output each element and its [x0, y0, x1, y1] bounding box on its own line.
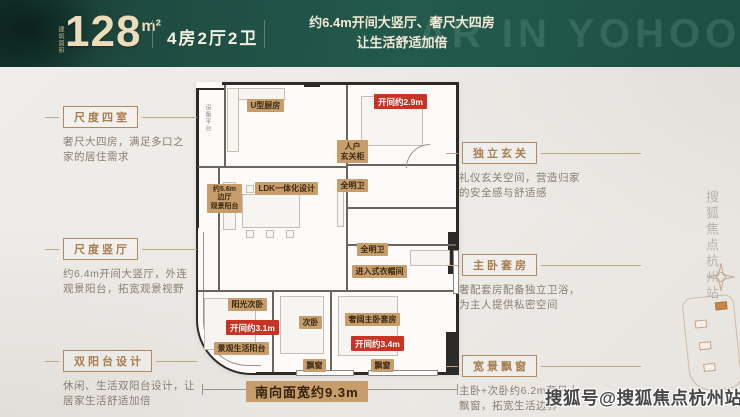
desc-line: 奢配套房配备独立卫浴，: [459, 284, 580, 296]
kitchen-counter: [227, 88, 239, 152]
callout-line: [45, 249, 59, 250]
callout-vertical-hall: 尺度竖厅 约6.4m开间大竖厅，外连 观景阳台，拓宽观景视野: [45, 238, 197, 297]
callout-line: [45, 361, 59, 362]
partition: [198, 290, 456, 292]
callout-description: 奢配套房配备独立卫浴， 为主人提供私密空间: [459, 283, 641, 313]
label-bathroom-1: 全明卫: [337, 179, 368, 192]
header-divider: [264, 20, 265, 48]
label-bathroom-2: 全明卫: [357, 243, 388, 256]
desc-line: 的安全感与舒适感: [459, 187, 547, 199]
dim-label-3-4m: 开间约3.4m: [351, 336, 404, 351]
entry-door-arc: [406, 144, 430, 168]
floor-plan: 设备平台 U型厨房 开间约2.9m 人户 玄关柜 全明卫 LDK一体化设计 约5…: [196, 82, 459, 375]
callout-line: [156, 361, 197, 362]
dining-table: [242, 194, 300, 228]
wall-column: [304, 82, 320, 87]
callout-double-balcony: 双阳台设计 休闲、生活双阳台设计，让 居家生活舒适加倍: [45, 350, 197, 409]
header-divider: [152, 20, 153, 48]
tagline-line2: 让生活舒适加倍: [356, 35, 447, 50]
room-layout-text: 4房2厅2卫: [167, 24, 258, 49]
label-side-hall-line2: 边厅: [218, 194, 232, 201]
chair: [286, 230, 294, 238]
vertical-watermark: 搜狐焦点杭州站: [702, 190, 721, 302]
callout-title: 双阳台设计: [63, 350, 152, 372]
label-walkin-closet: 进入式衣帽间: [352, 265, 407, 278]
label-sun-bedroom: 阳光次卧: [228, 298, 267, 311]
partition: [330, 290, 332, 372]
label-view-balcony: 景观生活阳台: [214, 342, 269, 355]
location-map: [681, 294, 740, 393]
callout-line: [541, 366, 641, 367]
bottom-watermark: 搜狐号@搜狐焦点杭州站: [545, 385, 740, 410]
chair: [266, 230, 274, 238]
floorplan-poster: AR IN YOHOO 建筑面积 128 m² 4房2厅2卫 约6.4m开间大竖…: [0, 0, 740, 417]
label-entry-line2: 玄关柜: [341, 152, 365, 161]
dimension-tick: [202, 384, 203, 395]
label-kitchen: U型厨房: [247, 99, 284, 112]
building-block: [703, 363, 716, 372]
wall: [222, 82, 459, 85]
tagline-line1: 约6.4m开间大竖厅、奢尺大四房: [309, 15, 495, 30]
wall: [456, 82, 459, 375]
chair: [246, 230, 254, 238]
wardrobe: [410, 250, 450, 266]
callout-title: 尺度竖厅: [63, 238, 138, 260]
callout-line: [541, 153, 641, 154]
callout-four-rooms: 尺度四室 奢尺大四房，满足多口之 家的居住需求: [45, 106, 197, 165]
callout-description: 约6.4m开间大竖厅，外连 观景阳台，拓宽观景视野: [63, 267, 197, 297]
desc-line: 约6.4m开间大竖厅，外连: [63, 268, 187, 280]
label-master-suite: 奢阔主卧套房: [345, 313, 400, 326]
callout-description: 休闲、生活双阳台设计，让 居家生活舒适加倍: [63, 379, 197, 409]
callout-line: [142, 117, 197, 118]
label-entry-line1: 人户: [345, 142, 361, 151]
desc-line: 休闲、生活双阳台设计，让: [63, 380, 195, 392]
header-banner: AR IN YOHOO 建筑面积 128 m² 4房2厅2卫 约6.4m开间大竖…: [0, 0, 740, 67]
building-block: [695, 319, 708, 328]
callout-line: [142, 249, 197, 250]
label-bedroom-2: 次卧: [299, 316, 322, 329]
desc-line: 飘窗，拓宽生活边界: [459, 400, 558, 412]
callout-line: [446, 366, 458, 367]
label-side-hall-balcony: 约5.6m 边厅 观景阳台: [207, 184, 242, 213]
desc-line: 观景阳台，拓宽观景视野: [63, 283, 184, 295]
callout-title: 宽景飘窗: [462, 355, 537, 377]
callout-line: [446, 153, 458, 154]
wall: [196, 88, 224, 90]
dim-label-2-9m: 开间约2.9m: [374, 94, 427, 109]
south-width-label: 南向面宽约9.3m: [246, 381, 368, 402]
header-tagline: 约6.4m开间大竖厅、奢尺大四房 让生活舒适加倍: [278, 13, 526, 53]
callout-foyer: 独立玄关 礼仪玄关空间，营造归家 的安全感与舒适感: [446, 142, 641, 201]
callout-line: [541, 265, 641, 266]
desc-line: 为主人提供私密空间: [459, 299, 558, 311]
callout-description: 礼仪玄关空间，营造归家 的安全感与舒适感: [459, 171, 641, 201]
label-entry-cabinet: 人户 玄关柜: [337, 140, 368, 163]
area-value: 128: [65, 8, 141, 56]
label-equip-platform: 设备平台: [203, 104, 212, 132]
chair: [246, 185, 254, 193]
dimension-tick: [457, 384, 458, 395]
callout-line: [446, 265, 458, 266]
area-caption: 建筑面积: [56, 26, 65, 54]
highlighted-building: [715, 301, 728, 310]
desc-line: 家的居住需求: [63, 151, 129, 163]
callout-title: 主卧套房: [462, 254, 537, 276]
partition: [224, 85, 226, 166]
dim-label-3-1m: 开间约3.1m: [226, 320, 279, 335]
label-side-hall-line3: 观景阳台: [211, 203, 239, 210]
partition: [346, 207, 456, 209]
south-width-dimension: 南向面宽约9.3m: [202, 381, 458, 399]
label-bay-window-2: 飘窗: [371, 359, 394, 372]
label-ldk: LDK一体化设计: [255, 182, 318, 195]
desc-line: 居家生活舒适加倍: [63, 395, 151, 407]
callout-description: 奢尺大四房，满足多口之 家的居住需求: [63, 135, 197, 165]
desc-line: 礼仪玄关空间，营造归家: [459, 172, 580, 184]
label-bay-window-1: 飘窗: [303, 359, 326, 372]
partition: [198, 166, 346, 168]
desc-line: 奢尺大四房，满足多口之: [63, 136, 184, 148]
callout-title: 尺度四室: [63, 106, 138, 128]
partition: [346, 164, 456, 166]
callout-line: [45, 117, 59, 118]
callout-master-suite: 主卧套房 奢配套房配备独立卫浴， 为主人提供私密空间: [446, 254, 641, 313]
label-side-hall-line1: 约5.6m: [213, 186, 236, 193]
building-block: [699, 341, 712, 350]
callout-title: 独立玄关: [462, 142, 537, 164]
